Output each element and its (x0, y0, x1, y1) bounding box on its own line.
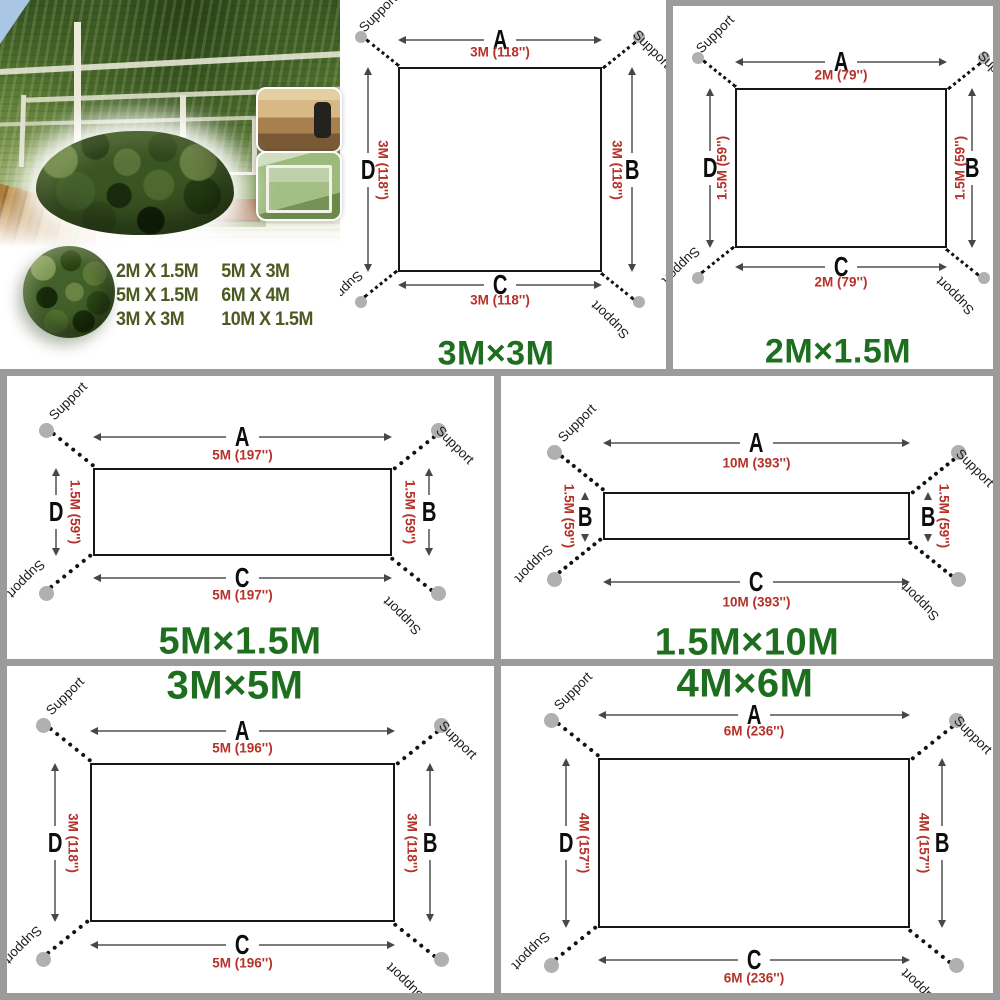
dimension-value: 1.5M (59'') (403, 480, 418, 544)
support-line (48, 726, 93, 763)
support-label: Support (356, 0, 400, 35)
dimension-line (98, 730, 226, 732)
support-anchor-dot (547, 572, 562, 587)
dimension-arrow-vertical: D (43, 468, 69, 556)
arrow-left-icon (90, 941, 98, 949)
dimension-line (770, 959, 902, 961)
support-anchor-dot (978, 272, 990, 284)
dimension-line (941, 766, 943, 826)
arrow-up-icon (968, 88, 976, 96)
dimension-line (565, 860, 567, 920)
support-label: Support (693, 12, 737, 56)
size-option: 6M X 4M (221, 285, 313, 308)
arrow-left-icon (598, 956, 606, 964)
dimension-line (55, 529, 57, 548)
dimension-line (773, 442, 902, 444)
dimension-letter: B (625, 156, 640, 184)
net-outline (398, 67, 602, 272)
dimension-line (941, 860, 943, 920)
support-line (700, 246, 735, 275)
grid-divider-vertical (494, 369, 501, 1000)
support-anchor-dot (633, 296, 645, 308)
size-diagram: 2M×1.5M A2M (79'')C2M (79'')D1.5M (59'')… (666, 0, 993, 369)
arrow-left-icon (598, 711, 606, 719)
support-line (392, 434, 437, 471)
photo-panel: 2M X 1.5M 5M X 3M 5M X 1.5M 6M X 4M 3M X… (0, 0, 340, 369)
dimension-arrow-vertical: B (416, 468, 442, 556)
support-anchor-dot (36, 718, 51, 733)
dimension-value: 1.5M (59'') (937, 484, 952, 548)
support-label: Support (46, 379, 90, 423)
diagram-title: 3M×5M (167, 664, 304, 709)
dimension-line (516, 39, 594, 41)
dimension-line (406, 284, 484, 286)
arrow-right-icon (902, 956, 910, 964)
dimension-line (54, 771, 56, 826)
inset-photo-pergola-frame (256, 151, 342, 221)
dimension-line (429, 771, 431, 826)
sky-patch (0, 0, 30, 44)
dimension-line (367, 75, 369, 153)
support-line (945, 248, 980, 277)
net-outline (603, 492, 910, 540)
dimension-line (428, 476, 430, 495)
support-anchor-dot (544, 958, 559, 973)
support-line (947, 62, 982, 91)
dimension-arrow-horizontal: C (603, 567, 910, 597)
dimension-line (55, 476, 57, 495)
dimension-line (709, 185, 711, 240)
size-diagram: 3M×3M A3M (118'')C3M (118'')D3M (118'')B… (340, 0, 666, 369)
dimension-line (631, 75, 633, 153)
dimension-line (857, 61, 939, 63)
support-label: Support (380, 594, 424, 638)
dimension-letter: A (749, 429, 764, 457)
dimension-letter: D (49, 498, 64, 526)
dimension-line (743, 61, 825, 63)
arrow-left-icon (603, 439, 611, 447)
dimension-value: 1.5M (59'') (68, 480, 83, 544)
net-outline (735, 88, 947, 248)
dimension-arrow-vertical: B (929, 758, 955, 928)
dimension-value: 3M (118'') (470, 45, 530, 60)
support-label: Support (933, 274, 977, 318)
grid-divider-vertical (993, 0, 1000, 1000)
support-line (389, 556, 434, 593)
support-anchor-dot (431, 586, 446, 601)
arrow-right-icon (902, 711, 910, 719)
support-label: Support (555, 401, 599, 445)
dimension-value: 4M (157'') (917, 813, 932, 873)
arrow-up-icon (562, 758, 570, 766)
size-option: 10M X 1.5M (221, 309, 313, 332)
dimension-line (631, 187, 633, 265)
dimension-value: 5M (196'') (212, 741, 272, 756)
arrow-down-icon (628, 264, 636, 272)
dimension-value: 2M (79'') (815, 68, 868, 83)
support-label: Support (898, 580, 942, 624)
arrow-up-icon (628, 67, 636, 75)
arrow-left-icon (398, 281, 406, 289)
dimension-line (367, 187, 369, 265)
camo-texture-swatch (23, 246, 115, 338)
dimension-value: 3M (118'') (66, 813, 81, 873)
dimension-line (971, 185, 973, 240)
dimension-line (101, 436, 226, 438)
product-infographic: 2M X 1.5M 5M X 3M 5M X 1.5M 6M X 4M 3M X… (0, 0, 1000, 1000)
support-label: Support (588, 298, 632, 342)
dimension-line (54, 860, 56, 915)
support-label: Support (433, 423, 477, 467)
net-outline (93, 468, 392, 556)
support-anchor-dot (434, 952, 449, 967)
size-diagram: 4M×6M A6M (236'')C6M (236'')D4M (157'')B… (501, 666, 1000, 993)
support-anchor-dot (39, 586, 54, 601)
support-line (702, 59, 737, 88)
dimension-line (773, 581, 902, 583)
support-line (395, 729, 440, 766)
diagram-title: 2M×1.5M (765, 333, 911, 372)
dimension-value: 5M (197'') (212, 448, 272, 463)
arrow-left-icon (603, 578, 611, 586)
dimension-arrow-horizontal: A (603, 428, 910, 458)
arrow-right-icon (594, 36, 602, 44)
dimension-line (743, 266, 825, 268)
diagram-title: 3M×3M (438, 335, 555, 374)
arrow-up-icon (938, 758, 946, 766)
support-anchor-dot (949, 958, 964, 973)
pergola-post (19, 95, 27, 167)
arrow-up-icon (364, 67, 372, 75)
arrow-down-icon (706, 240, 714, 248)
dimension-letter: B (921, 503, 936, 531)
arrow-right-icon (387, 727, 395, 735)
dimension-value: 10M (393'') (723, 456, 791, 471)
arrow-down-icon (425, 548, 433, 556)
dimension-line (259, 577, 384, 579)
net-outline (598, 758, 910, 928)
dimension-line (259, 436, 384, 438)
support-line (556, 721, 601, 758)
dimension-value: 1.5M (59'') (953, 136, 968, 200)
dimension-line (606, 959, 738, 961)
dimension-value: 3M (118'') (405, 813, 420, 873)
diagram-title: 5M×1.5M (159, 621, 322, 664)
arrow-right-icon (387, 941, 395, 949)
size-options-list: 2M X 1.5M 5M X 3M 5M X 1.5M 6M X 4M 3M X… (116, 261, 313, 331)
dimension-arrow-vertical: D (553, 758, 579, 928)
pergola-frame-lines (266, 165, 332, 213)
arrow-left-icon (735, 58, 743, 66)
support-line (45, 919, 90, 956)
arrow-down-icon (364, 264, 372, 272)
size-diagram: 1.5M×10M A10M (393'')C10M (393'')B1.5M (… (501, 376, 1000, 659)
dimension-line (428, 529, 430, 548)
dimension-value: 4M (157'') (577, 813, 592, 873)
support-line (910, 724, 955, 761)
grid-divider-vertical (0, 369, 7, 1000)
pergola-beam (0, 51, 340, 75)
support-anchor-dot (355, 296, 367, 308)
support-label: Support (43, 674, 87, 718)
grid-divider-vertical (666, 0, 673, 376)
arrow-right-icon (902, 439, 910, 447)
dimension-value: 2M (79'') (815, 275, 868, 290)
dimension-value: 10M (393'') (723, 595, 791, 610)
support-line (553, 925, 598, 962)
support-line (51, 431, 96, 468)
dimension-value: 5M (197'') (212, 588, 272, 603)
arrow-down-icon (426, 914, 434, 922)
dimension-line (565, 766, 567, 826)
arrow-left-icon (93, 574, 101, 582)
dimension-letter: D (559, 829, 574, 857)
dimension-arrow-vertical: B (417, 763, 443, 922)
dimension-line (516, 284, 594, 286)
arrow-down-icon (938, 920, 946, 928)
dimension-line (98, 944, 226, 946)
arrow-right-icon (384, 574, 392, 582)
arrow-down-icon (924, 534, 932, 542)
dimension-value: 5M (196'') (212, 956, 272, 971)
dimension-letter: C (749, 568, 764, 596)
dimension-line (611, 442, 740, 444)
arrow-right-icon (939, 263, 947, 271)
support-line (363, 270, 398, 299)
support-anchor-dot (544, 713, 559, 728)
dimension-letter: B (422, 498, 437, 526)
size-option: 5M X 1.5M (116, 285, 210, 308)
support-line (907, 928, 952, 965)
dimension-letter: D (48, 829, 63, 857)
support-label: Support (951, 713, 995, 757)
support-line (48, 553, 93, 590)
dimension-line (606, 714, 738, 716)
net-outline (90, 763, 395, 922)
arrow-down-icon (52, 548, 60, 556)
size-option: 3M X 3M (116, 309, 210, 332)
dimension-value: 3M (118'') (470, 293, 530, 308)
support-label: Support (953, 446, 997, 490)
support-anchor-dot (951, 572, 966, 587)
arrow-down-icon (51, 914, 59, 922)
dimension-letter: D (361, 156, 376, 184)
size-diagram: 5M×1.5M A5M (197'')C5M (197'')D1.5M (59'… (0, 376, 494, 659)
size-option: 2M X 1.5M (116, 261, 210, 284)
dimension-letter: B (578, 503, 593, 531)
dimension-value: 3M (118'') (376, 140, 391, 200)
support-line (600, 272, 635, 301)
support-anchor-dot (36, 952, 51, 967)
dimension-line (857, 266, 939, 268)
dimension-value: 6M (236'') (724, 724, 784, 739)
dimension-line (406, 39, 484, 41)
dimension-value: 1.5M (59'') (715, 136, 730, 200)
dimension-letter: B (935, 829, 950, 857)
arrow-up-icon (52, 468, 60, 476)
dimension-value: 1.5M (59'') (562, 484, 577, 548)
support-line (602, 41, 637, 70)
support-label: Support (551, 669, 595, 713)
dimension-line (101, 577, 226, 579)
arrow-left-icon (735, 263, 743, 271)
dimension-line (259, 730, 387, 732)
arrow-up-icon (706, 88, 714, 96)
size-option: 5M X 3M (221, 261, 313, 284)
dimension-line (770, 714, 902, 716)
arrow-down-icon (562, 920, 570, 928)
inset-photo-canopy-scene (256, 87, 342, 153)
arrow-up-icon (581, 492, 589, 500)
support-label: Support (436, 718, 480, 762)
dimension-letter: B (423, 829, 438, 857)
dimension-line (971, 96, 973, 151)
arrow-up-icon (426, 763, 434, 771)
dimension-line (611, 581, 740, 583)
support-line (365, 38, 400, 67)
arrow-left-icon (93, 433, 101, 441)
arrow-up-icon (425, 468, 433, 476)
arrow-up-icon (924, 492, 932, 500)
support-anchor-dot (692, 272, 704, 284)
camo-net-roll-image (36, 131, 234, 235)
dimension-value: 3M (118'') (610, 140, 625, 200)
pergola-post (74, 22, 81, 154)
arrow-right-icon (594, 281, 602, 289)
dimension-line (259, 944, 387, 946)
support-anchor-dot (39, 423, 54, 438)
dimension-line (429, 860, 431, 915)
dimension-value: 6M (236'') (724, 971, 784, 986)
dimension-arrow-vertical: D (42, 763, 68, 922)
arrow-right-icon (939, 58, 947, 66)
arrow-down-icon (581, 534, 589, 542)
arrow-left-icon (398, 36, 406, 44)
support-line (392, 922, 437, 959)
grid-divider-horizontal (666, 0, 1000, 6)
arrow-right-icon (384, 433, 392, 441)
size-diagram: 3M×5M A5M (196'')C5M (196'')D3M (118'')B… (0, 666, 494, 993)
arrow-left-icon (90, 727, 98, 735)
arrow-down-icon (968, 240, 976, 248)
person-silhouette (314, 102, 331, 138)
arrow-up-icon (51, 763, 59, 771)
dimension-line (709, 96, 711, 151)
